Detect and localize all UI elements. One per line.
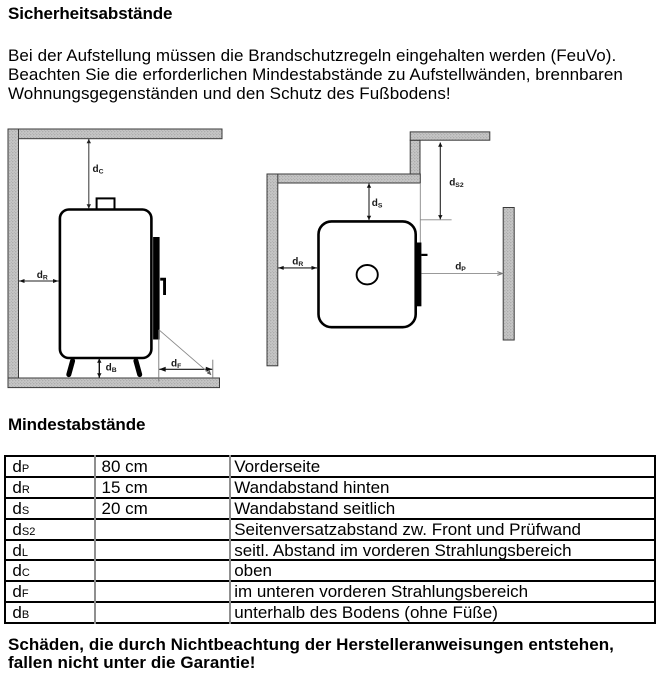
- svg-text:dF: dF: [171, 358, 181, 370]
- svg-text:dS2: dS2: [449, 178, 464, 190]
- svg-text:dS: dS: [372, 198, 383, 210]
- svg-text:dR: dR: [292, 257, 303, 269]
- svg-text:dR: dR: [37, 270, 48, 282]
- svg-text:dB: dB: [106, 362, 117, 374]
- svg-text:dP: dP: [455, 262, 466, 274]
- svg-text:dC: dC: [93, 164, 104, 176]
